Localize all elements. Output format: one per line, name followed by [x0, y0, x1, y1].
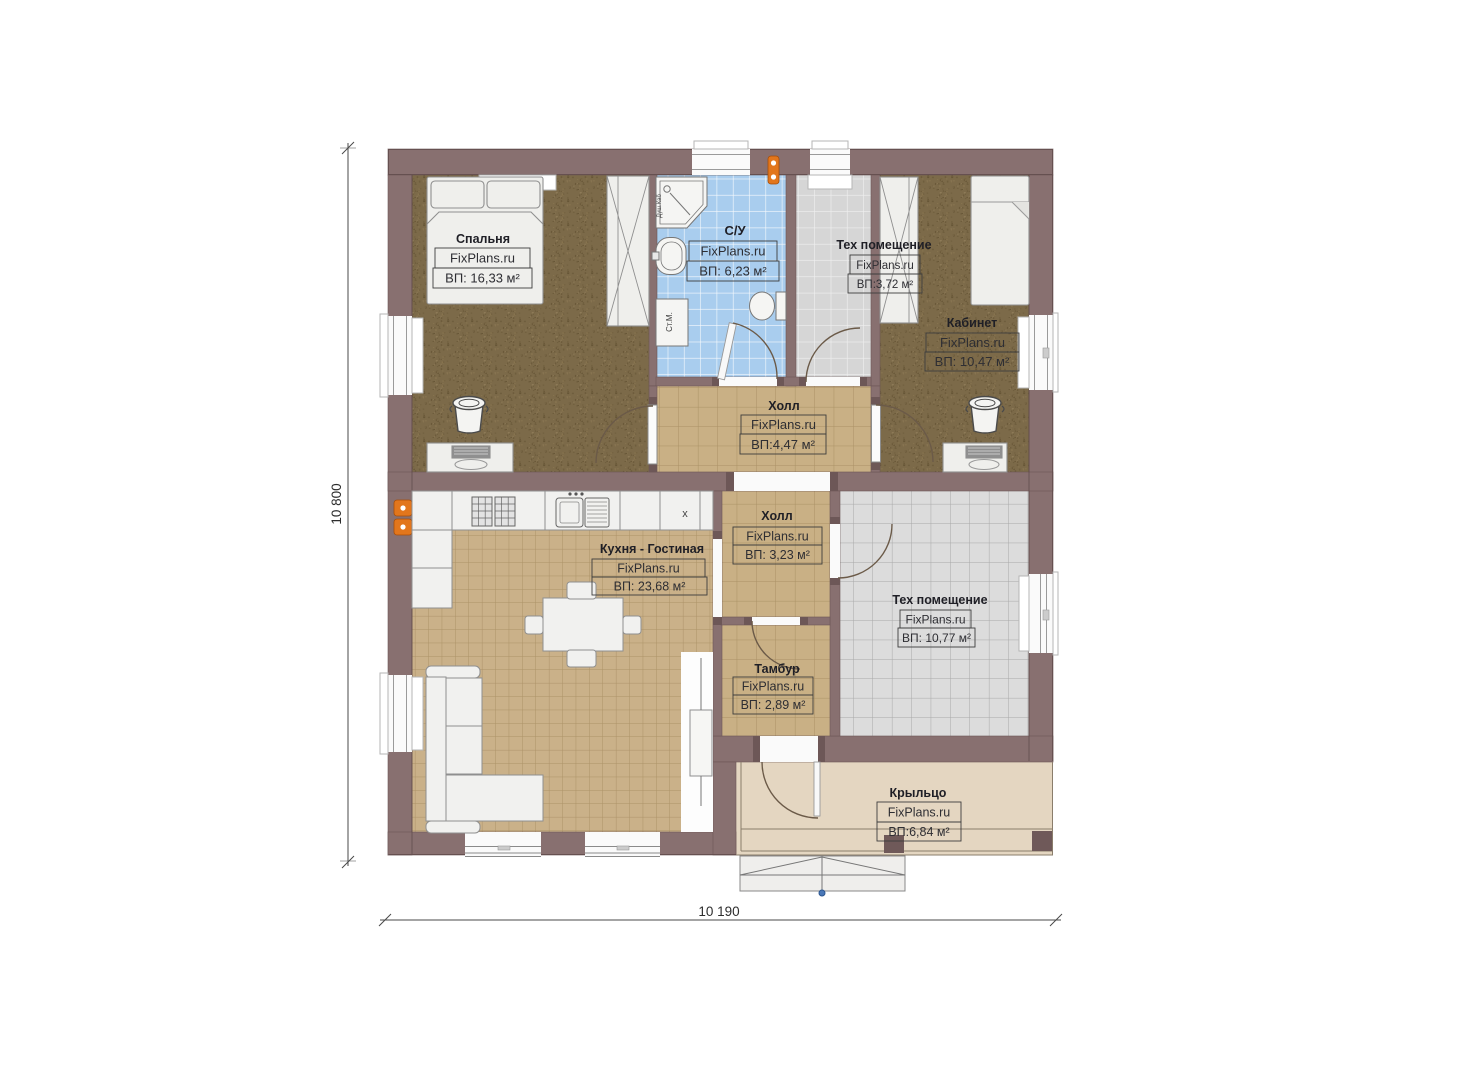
- svg-text:Кухня - Гостиная: Кухня - Гостиная: [600, 542, 704, 556]
- svg-text:FixPlans.ru: FixPlans.ru: [700, 244, 765, 259]
- svg-text:FixPlans.ru: FixPlans.ru: [746, 530, 809, 544]
- svg-text:FixPlans.ru: FixPlans.ru: [905, 613, 965, 627]
- svg-text:Холл: Холл: [761, 509, 792, 523]
- svg-text:Тех помещение: Тех помещение: [836, 238, 931, 252]
- svg-text:ВП: 23,68 м²: ВП: 23,68 м²: [614, 580, 686, 594]
- svg-text:ВП: 10,47 м²: ВП: 10,47 м²: [935, 354, 1010, 369]
- svg-text:ВП: 6,23 м²: ВП: 6,23 м²: [699, 264, 767, 279]
- svg-text:FixPlans.ru: FixPlans.ru: [856, 260, 914, 272]
- svg-text:ВП:4,47 м²: ВП:4,47 м²: [751, 437, 815, 452]
- svg-text:ВП: 10,77 м²: ВП: 10,77 м²: [902, 631, 971, 645]
- svg-text:10 190: 10 190: [698, 904, 739, 919]
- svg-text:ВП: 16,33 м²: ВП: 16,33 м²: [445, 271, 520, 286]
- svg-text:Крыльцо: Крыльцо: [890, 786, 947, 800]
- svg-text:FixPlans.ru: FixPlans.ru: [888, 806, 951, 820]
- svg-text:FixPlans.ru: FixPlans.ru: [940, 335, 1005, 350]
- svg-text:х: х: [682, 508, 688, 520]
- svg-text:Душ.Каб: Душ.Каб: [657, 193, 663, 218]
- svg-text:FixPlans.ru: FixPlans.ru: [617, 562, 680, 576]
- svg-text:ВП: 3,23 м²: ВП: 3,23 м²: [745, 548, 810, 562]
- svg-text:FixPlans.ru: FixPlans.ru: [751, 417, 816, 432]
- svg-text:FixPlans.ru: FixPlans.ru: [742, 680, 805, 694]
- svg-text:ВП:3,72 м²: ВП:3,72 м²: [857, 279, 914, 291]
- svg-text:Спальня: Спальня: [456, 232, 510, 246]
- svg-text:Тамбур: Тамбур: [754, 662, 800, 676]
- svg-text:Холл: Холл: [768, 399, 799, 413]
- svg-text:С/У: С/У: [724, 223, 746, 238]
- svg-text:Ст.М.: Ст.М.: [665, 312, 674, 332]
- svg-text:ВП: 2,89 м²: ВП: 2,89 м²: [741, 698, 806, 712]
- svg-text:Тех помещение: Тех помещение: [892, 593, 987, 607]
- svg-text:FixPlans.ru: FixPlans.ru: [450, 251, 515, 266]
- svg-text:Кабинет: Кабинет: [947, 316, 998, 330]
- svg-text:ВП:6,84 м²: ВП:6,84 м²: [888, 825, 949, 839]
- svg-text:10 800: 10 800: [329, 483, 344, 524]
